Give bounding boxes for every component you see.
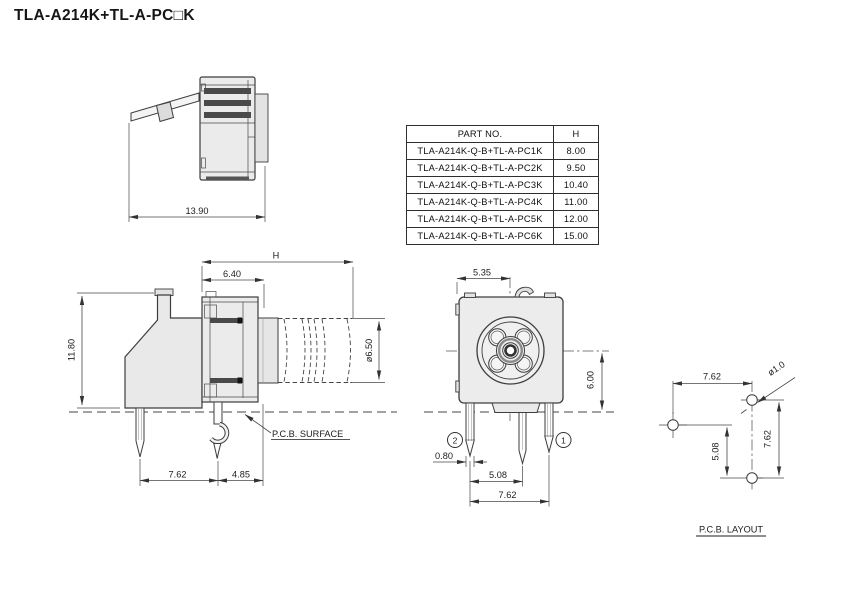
view-front: 5.35 6.00 0.80 5.08 7.62 2 1	[424, 268, 614, 507]
front-lever-tab	[515, 287, 534, 297]
terminal-1-number: 1	[561, 435, 566, 445]
part-no-cell: TLA-A214K-Q-B+TL-A-PC5K	[407, 211, 554, 228]
dim-side-H: H	[273, 251, 280, 261]
table-row: TLA-A214K-Q-B+TL-A-PC6K 15.00	[407, 228, 599, 245]
table-row: TLA-A214K-Q-B+TL-A-PC1K 8.00	[407, 143, 599, 160]
pcb-hole-left	[668, 420, 679, 431]
terminal-2-number: 2	[453, 435, 458, 445]
dim-side-body-height: 11.80	[67, 339, 77, 361]
pcb-layout-label: P.C.B. LAYOUT	[699, 525, 763, 535]
dim-front-top-width: 5.35	[473, 268, 491, 278]
part-number-table: PART NO. H TLA-A214K-Q-B+TL-A-PC1K 8.00 …	[406, 125, 599, 245]
part-no-cell: TLA-A214K-Q-B+TL-A-PC3K	[407, 177, 554, 194]
col-header-part-no: PART NO.	[407, 126, 554, 143]
h-value-cell: 9.50	[554, 160, 599, 177]
dim-front-center-height: 6.00	[586, 371, 596, 389]
side-plunger-base	[258, 318, 278, 383]
part-no-cell: TLA-A214K-Q-B+TL-A-PC4K	[407, 194, 554, 211]
view-lever-side: 13.90	[129, 77, 268, 222]
h-value-cell: 11.00	[554, 194, 599, 211]
dim-pcb-h-pitch: 7.62	[703, 372, 721, 382]
front-round-face	[477, 317, 544, 384]
front-pin-1	[544, 403, 554, 452]
terminal-1-balloon: 1	[556, 433, 571, 448]
lever-clip	[157, 102, 174, 122]
h-value-cell: 8.00	[554, 143, 599, 160]
dim-pcb-v-pitch-a: 5.08	[711, 443, 721, 461]
table-header-row: PART NO. H	[407, 126, 599, 143]
h-value-cell: 15.00	[554, 228, 599, 245]
dim-side-plunger-dia: ø6.50	[364, 339, 374, 363]
front-base-tab	[492, 403, 540, 413]
table-row: TLA-A214K-Q-B+TL-A-PC4K 11.00	[407, 194, 599, 211]
pcb-hole-bottom	[747, 473, 758, 484]
datasheet-page: TLA-A214K+TL-A-PC□K	[0, 0, 857, 606]
table-row: TLA-A214K-Q-B+TL-A-PC5K 12.00	[407, 211, 599, 228]
terminal-2-balloon: 2	[448, 433, 463, 448]
technical-drawing: 13.90	[0, 0, 857, 606]
dim-front-pitch-b: 7.62	[499, 490, 517, 500]
pcb-surface-label: P.C.B. SURFACE	[272, 429, 343, 439]
part-no-cell: TLA-A214K-Q-B+TL-A-PC1K	[407, 143, 554, 160]
side-switch-module	[202, 297, 258, 402]
side-plunger-dashed	[278, 319, 352, 383]
table-row: TLA-A214K-Q-B+TL-A-PC3K 10.40	[407, 177, 599, 194]
dim-front-pitch-a: 5.08	[489, 470, 507, 480]
part-no-cell: TLA-A214K-Q-B+TL-A-PC6K	[407, 228, 554, 245]
dim-front-pin-width: 0.80	[435, 451, 453, 461]
lever-view-connector-block	[255, 94, 268, 162]
dim-pcb-v-pitch-b: 7.62	[763, 430, 773, 448]
dim-side-pin-span: 7.62	[169, 470, 187, 480]
side-pin-hook	[211, 402, 227, 459]
side-pin-straight	[136, 408, 144, 457]
pcb-hole-top	[747, 395, 758, 406]
front-pin-2	[465, 403, 475, 456]
view-side: H 6.40 11.80 ø6.50 7.62 4.85 P.C.B. SURF…	[67, 251, 398, 487]
h-value-cell: 12.00	[554, 211, 599, 228]
h-value-cell: 10.40	[554, 177, 599, 194]
col-header-h: H	[554, 126, 599, 143]
table-row: TLA-A214K-Q-B+TL-A-PC2K 9.50	[407, 160, 599, 177]
side-bracket	[125, 295, 202, 408]
dim-lever-width: 13.90	[186, 206, 209, 216]
dim-side-pin-offset: 4.85	[232, 470, 250, 480]
front-center-peg	[519, 413, 526, 464]
dim-pcb-hole-dia: ø1.0	[766, 359, 787, 377]
part-no-cell: TLA-A214K-Q-B+TL-A-PC2K	[407, 160, 554, 177]
dim-side-front-width: 6.40	[223, 269, 241, 279]
view-pcb-layout: 7.62 7.62 5.08 ø1.0 P.C.B. LAYOUT	[659, 359, 795, 536]
